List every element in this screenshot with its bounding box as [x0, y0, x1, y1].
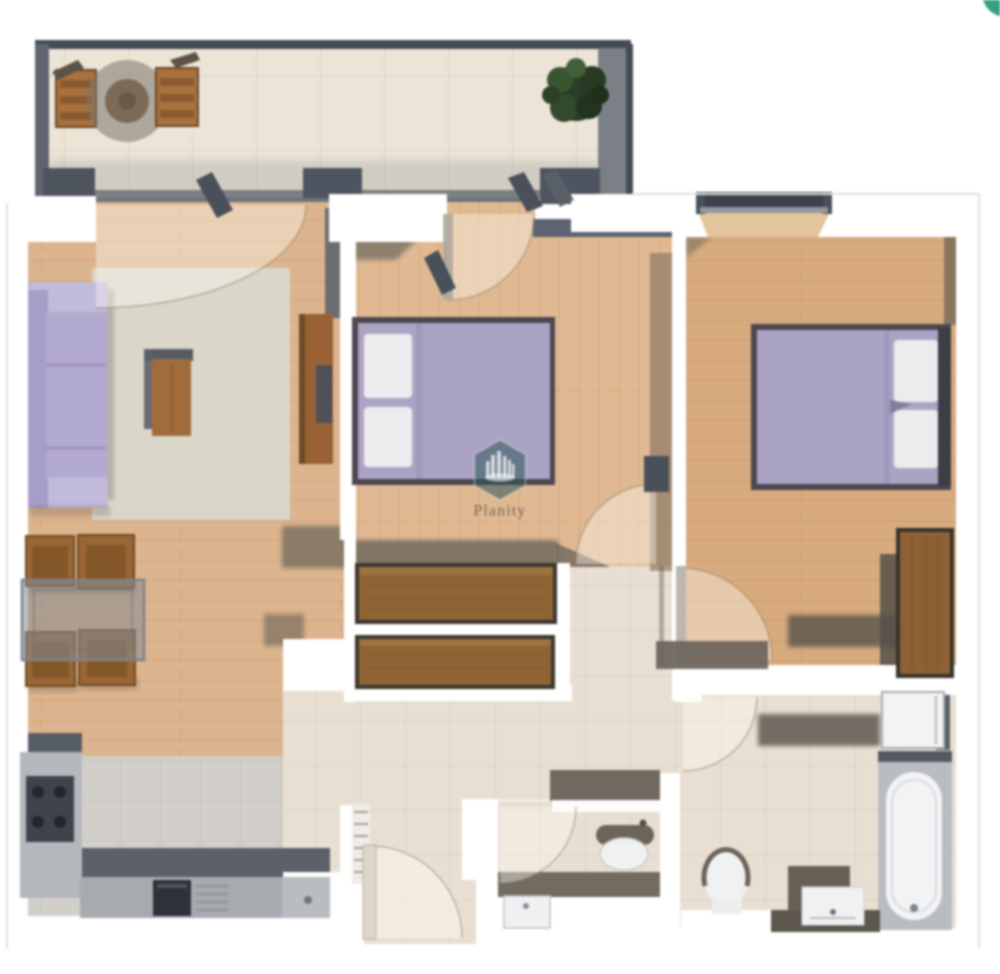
svg-text:Planity: Planity	[473, 503, 526, 520]
